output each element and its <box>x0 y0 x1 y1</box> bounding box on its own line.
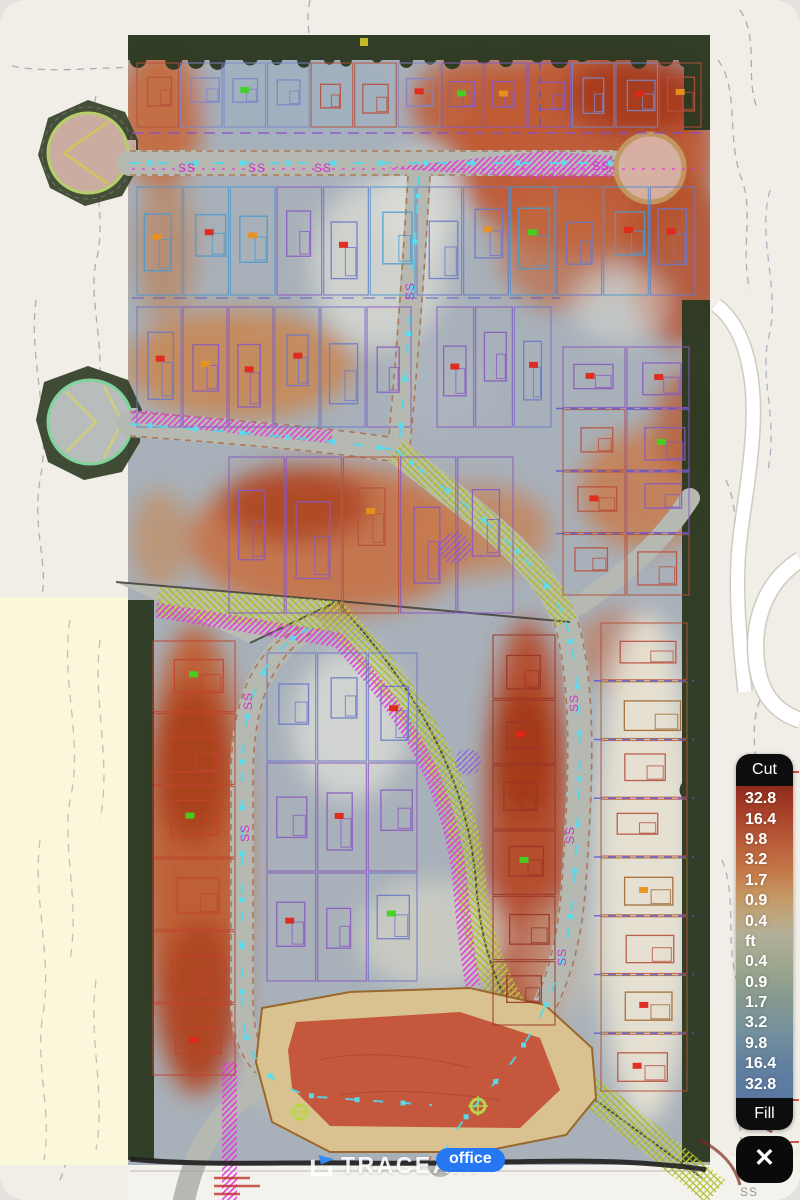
fill-button[interactable]: Fill <box>736 1098 793 1130</box>
legend-unit: ft <box>745 934 793 950</box>
legend-value: 16.4 <box>745 812 793 828</box>
legend-value: 1.7 <box>745 873 793 889</box>
legend-value: 32.8 <box>745 1077 793 1093</box>
legend-value: 16.4 <box>745 1056 793 1072</box>
close-icon: ✕ <box>754 1146 775 1171</box>
legend-value: 1.7 <box>745 995 793 1011</box>
ss-label: SS <box>314 161 332 175</box>
ss-label: SS <box>563 826 577 844</box>
cut-button[interactable]: Cut <box>736 754 793 786</box>
cutfill-legend: Cut 32.8 16.4 9.8 3.2 1.7 0.9 0.4 ft 0.4… <box>736 754 793 1130</box>
fill-label: Fill <box>754 1105 774 1123</box>
site-plan-map[interactable]: SS SS SS SS SS SS SS SS SS SS SS <box>0 0 800 1200</box>
office-badge: office <box>436 1148 505 1172</box>
legend-scale: 32.8 16.4 9.8 3.2 1.7 0.9 0.4 ft 0.4 0.9… <box>736 786 793 1098</box>
legend-value: 0.9 <box>745 975 793 991</box>
legend-value: 0.4 <box>745 954 793 970</box>
ss-label: SS <box>567 694 581 712</box>
ss-label: SS <box>555 948 569 966</box>
legend-value: 3.2 <box>745 1015 793 1031</box>
legend-value: 9.8 <box>745 1036 793 1052</box>
cut-label: Cut <box>752 761 777 779</box>
ss-label: SS <box>592 159 610 173</box>
ss-label: SS <box>178 161 196 175</box>
legend-value: 9.8 <box>745 832 793 848</box>
legend-value: 0.4 <box>745 914 793 930</box>
legend-value: 0.9 <box>745 893 793 909</box>
ss-label: SS <box>248 161 266 175</box>
map-paint-layer <box>0 0 800 1200</box>
ss-label: SS <box>238 824 252 842</box>
ss-label: SS <box>403 282 417 300</box>
map-card: SS SS SS SS SS SS SS SS SS SS SS Cut 32.… <box>0 0 800 1200</box>
close-button[interactable]: ✕ <box>736 1136 793 1183</box>
ss-label: SS <box>740 1185 758 1199</box>
legend-value: 32.8 <box>745 791 793 807</box>
ss-label: SS <box>241 692 255 710</box>
legend-value: 3.2 <box>745 852 793 868</box>
